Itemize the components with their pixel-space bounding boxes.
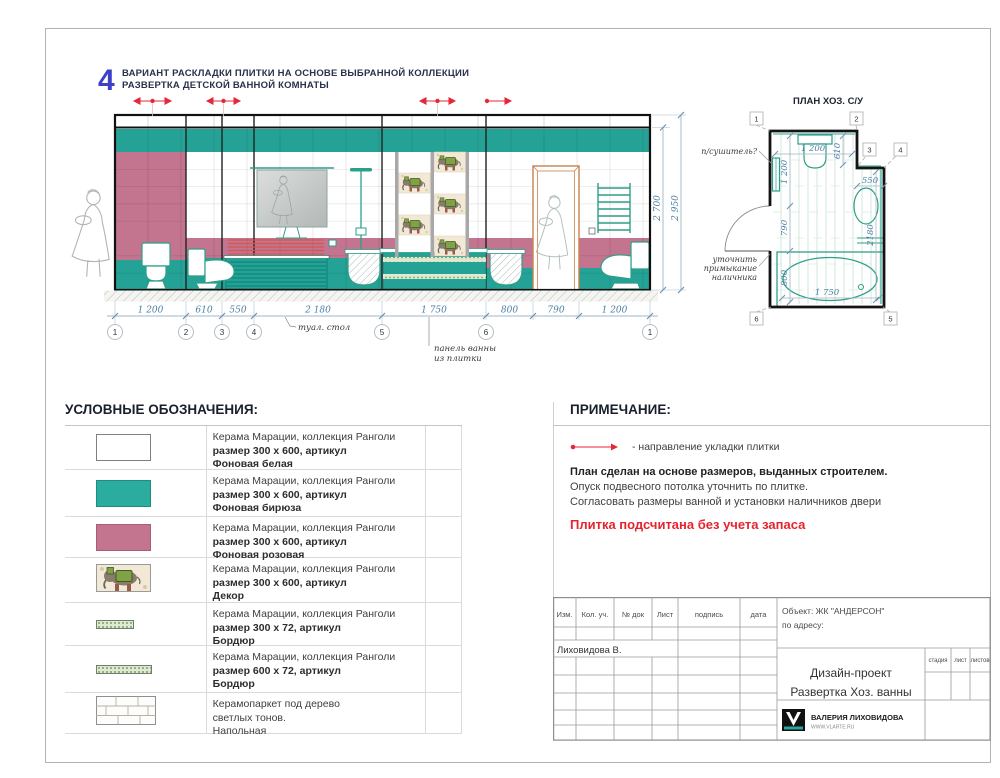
swatch-teal-tile <box>96 480 151 507</box>
dim-label: 550 <box>229 306 246 316</box>
plan-dim-label: 1 750 <box>815 288 840 298</box>
bath-panel-note-line1: панель ванны <box>434 344 496 354</box>
plan-labels: п/сушитель? уточнить примыкание наличник… <box>701 147 771 282</box>
dim-label: 1 750 <box>421 306 447 316</box>
casing-label-line3: наличника <box>712 273 757 282</box>
tb-project-line1: Дизайн-проект <box>810 666 892 680</box>
grid-bubble-label: 3 <box>220 328 225 337</box>
tb-site: WWW.VLARTE.RU <box>811 725 855 731</box>
washbasin-right <box>487 250 525 286</box>
elevation-annotations: туал. стол панель ванны из плитки <box>285 317 496 364</box>
height-dim-label: 2 700 <box>653 195 663 222</box>
height-dimensions: 2 700 2 950 <box>652 112 686 293</box>
tb-project-line2: Развертка Хоз. ванны <box>790 685 911 699</box>
plan-door-swing <box>725 206 770 251</box>
tb-sheets: листов <box>970 658 989 664</box>
legend-text: Керама Марации, коллекция Ранголи <box>213 431 425 445</box>
tb-stage: стадия <box>928 658 947 664</box>
grid-bubble-label: 1 <box>113 328 118 337</box>
plan-dim-label: 2180 <box>866 224 876 247</box>
tb-col-list: Лист <box>657 610 674 619</box>
decor-tile <box>399 173 430 193</box>
dim-label: 790 <box>547 306 564 316</box>
plan-towel-dryer <box>773 158 780 191</box>
dim-label: 610 <box>195 306 212 316</box>
tb-col-sign: подпись <box>695 610 723 619</box>
legend-row-teal: Керама Марации, коллекция Ранголи размер… <box>65 470 462 517</box>
plan-dimensions: 1 200 610 1 200 550 790 2180 800 1 750 <box>772 133 887 305</box>
tb-sheet: лист <box>954 658 967 664</box>
legend-row-decor: Керама Марации, коллекция Ранголи размер… <box>65 558 462 603</box>
plan-marker-label: 2 <box>854 115 858 124</box>
plan-marker-label: 6 <box>754 315 758 324</box>
decor-tile <box>435 152 466 172</box>
tb-col-kol: Кол. уч. <box>582 610 609 619</box>
legend-row-white: Керама Марации, коллекция Ранголи размер… <box>65 426 462 470</box>
grid-bubble-label: 6 <box>484 328 489 337</box>
dim-label: 1 200 <box>602 306 628 316</box>
swatch-decor-tile <box>96 564 151 592</box>
note-line-bold: План сделан на основе размеров, выданных… <box>570 466 990 478</box>
washbasin-left <box>345 250 383 286</box>
direction-arrow-icon <box>570 442 622 452</box>
plan-dim-label: 550 <box>862 176 879 186</box>
decor-tile <box>435 194 466 214</box>
grid-bubble-label: 1 <box>648 328 653 337</box>
dim-label: 800 <box>501 306 518 316</box>
plan-marker-label: 4 <box>898 146 902 155</box>
tb-col-izm: Изм. <box>556 610 572 619</box>
door <box>533 166 579 290</box>
plan-dim-label: 1 200 <box>801 144 826 154</box>
grid-bubble-label: 4 <box>252 328 257 337</box>
elevation-dimensions: 1 200 610 550 2 180 1 750 800 790 1 200 <box>107 301 658 324</box>
tb-col-date: дата <box>751 610 768 619</box>
vanity-cabinet <box>224 256 329 290</box>
tb-object-line2: по адресу: <box>782 620 824 630</box>
dryer-label: п/сушитель? <box>701 147 757 156</box>
plan-dim-label: 790 <box>780 219 790 236</box>
swatch-border-600 <box>96 665 152 674</box>
tb-object-line1: Объект: ЖК "АНДЕРСОН" <box>782 606 884 616</box>
legend: УСЛОВНЫЕ ОБОЗНАЧЕНИЯ: Керама Марации, ко… <box>65 402 462 734</box>
dim-label: 2 180 <box>304 306 331 316</box>
swatch-border-300 <box>96 620 134 629</box>
plan-dim-label: 1 200 <box>780 159 790 184</box>
legend-row-pink: Керама Марации, коллекция Ранголи размер… <box>65 517 462 558</box>
casing-label-line1: уточнить <box>712 255 757 264</box>
dim-label: 1 200 <box>138 306 164 316</box>
tile-direction-arrows <box>134 98 511 116</box>
plan-marker-label: 5 <box>888 315 892 324</box>
drawing-area: 1 200 610 550 2 180 1 750 800 790 1 200 … <box>0 0 1000 400</box>
floor-hatch <box>104 291 658 302</box>
decor-tile-columns <box>395 152 469 257</box>
title-block: Изм. Кол. уч. № док Лист подпись дата Ли… <box>553 597 991 741</box>
decor-tile <box>435 236 466 256</box>
note-warning: Плитка подсчитана без учета запаса <box>570 517 990 532</box>
legend-row-border-600: Керама Марации, коллекция Ранголи размер… <box>65 646 462 693</box>
plan-title: ПЛАН ХОЗ. С/У <box>793 96 863 107</box>
grid-bubbles: 1 2 3 4 5 6 1 <box>108 325 658 340</box>
bath-panel-note-line2: из плитки <box>434 354 482 364</box>
swatch-floor-parquet <box>96 696 156 725</box>
elevation-drawing: 1 200 610 550 2 180 1 750 800 790 1 200 … <box>72 98 686 364</box>
plan-drawing: ПЛАН ХОЗ. С/У <box>701 96 907 325</box>
note-line: Опуск подвесного потолка уточнить по пли… <box>570 481 990 493</box>
plan-dim-label: 800 <box>780 269 790 286</box>
plan-marker-label: 1 <box>754 115 758 124</box>
tb-col-doc: № док <box>622 610 645 619</box>
tb-brand: ВАЛЕРИЯ ЛИХОВИДОВА <box>811 713 904 722</box>
vanity-note: туал. стол <box>298 323 350 333</box>
drawing-sheet: 4 ВАРИАНТ РАСКЛАДКИ ПЛИТКИ НА ОСНОВЕ ВЫБ… <box>0 0 1000 778</box>
direction-arrow-label: - направление укладки плитки <box>632 441 780 453</box>
height-dim-label: 2 950 <box>671 195 681 222</box>
tb-author: Лиховидова В. <box>557 645 622 656</box>
legend-row-border-300: Керама Марации, коллекция Ранголи размер… <box>65 603 462 646</box>
scale-figure-sketch <box>72 190 109 277</box>
grid-bubble-label: 5 <box>380 328 385 337</box>
note-line: Согласовать размеры ванной и установки н… <box>570 496 990 508</box>
mirror <box>250 168 334 238</box>
notes-section: ПРИМЕЧАНИЕ: - направление укладки плитки… <box>553 402 990 532</box>
plan-marker-label: 3 <box>867 146 871 155</box>
plan-dim-label: 610 <box>833 142 843 159</box>
swatch-pink-tile <box>96 524 151 551</box>
legend-row-floor: Керамопаркет под дерево светлых тонов. Н… <box>65 693 462 734</box>
notes-title: ПРИМЕЧАНИЕ: <box>553 402 990 426</box>
decor-tile <box>399 215 430 235</box>
swatch-white-tile <box>96 434 151 461</box>
plan-bathtub <box>777 252 884 307</box>
casing-label-line2: примыкание <box>704 264 758 273</box>
legend-title: УСЛОВНЫЕ ОБОЗНАЧЕНИЯ: <box>65 402 462 426</box>
grid-bubble-label: 2 <box>184 328 189 337</box>
vlarte-logo-icon <box>782 709 805 731</box>
